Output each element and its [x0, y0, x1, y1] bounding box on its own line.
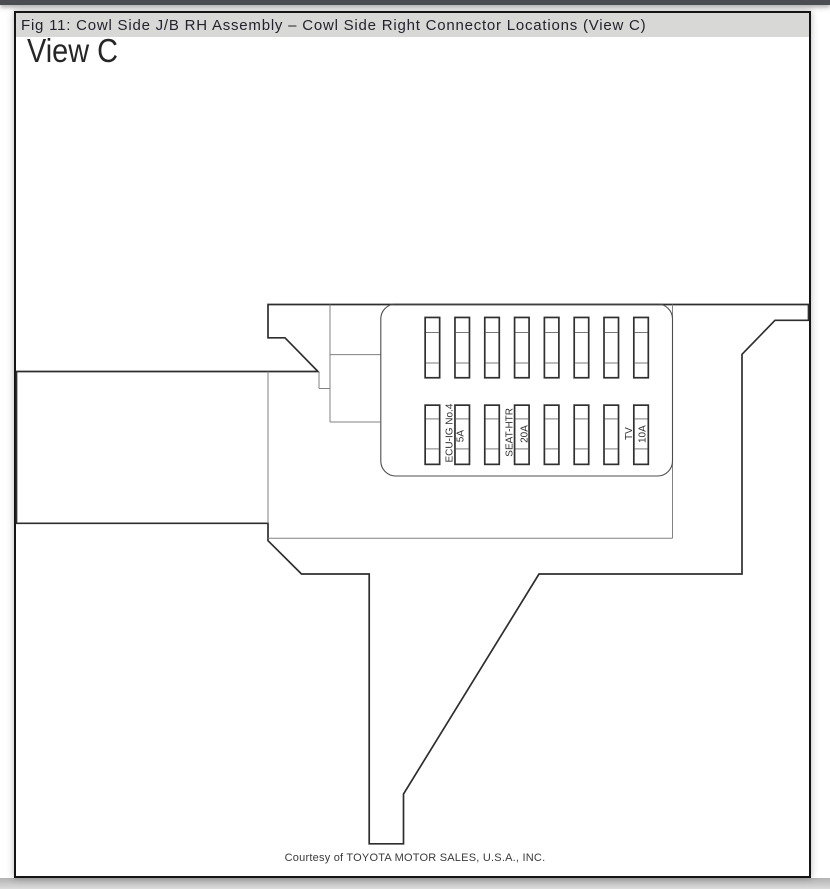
svg-text:TV: TV: [624, 427, 635, 440]
svg-text:20A: 20A: [520, 425, 531, 443]
svg-text:10A: 10A: [638, 425, 649, 443]
svg-text:SEAT-HTR: SEAT-HTR: [504, 408, 515, 457]
svg-text:ECU-IG No.4: ECU-IG No.4: [444, 403, 455, 462]
svg-text:5A: 5A: [456, 430, 467, 443]
